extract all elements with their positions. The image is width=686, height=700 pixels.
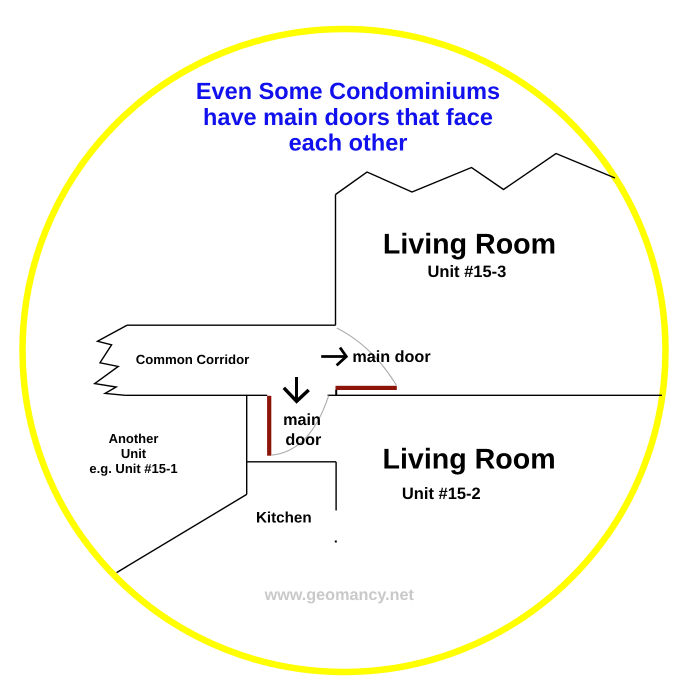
svg-text:Another: Another [109, 431, 159, 446]
svg-text:Living Room: Living Room [383, 444, 556, 476]
svg-text:e.g. Unit #15-1: e.g. Unit #15-1 [89, 461, 177, 476]
svg-text:each other: each other [289, 130, 408, 156]
svg-text:Common Corridor: Common Corridor [136, 352, 250, 367]
svg-text:Unit #15-3: Unit #15-3 [427, 263, 506, 281]
svg-text:Even Some Condominiums: Even Some Condominiums [196, 78, 500, 104]
svg-text:Unit #15-2: Unit #15-2 [402, 485, 481, 503]
svg-text:main: main [283, 411, 321, 429]
svg-text:have main doors that face: have main doors that face [203, 104, 493, 130]
svg-text:Living Room: Living Room [383, 229, 556, 261]
svg-text:Kitchen: Kitchen [256, 510, 312, 527]
svg-text:door: door [285, 431, 322, 449]
svg-text:www.geomancy.net: www.geomancy.net [264, 586, 415, 604]
svg-text:Unit: Unit [121, 446, 147, 461]
svg-text:main door: main door [352, 348, 431, 366]
